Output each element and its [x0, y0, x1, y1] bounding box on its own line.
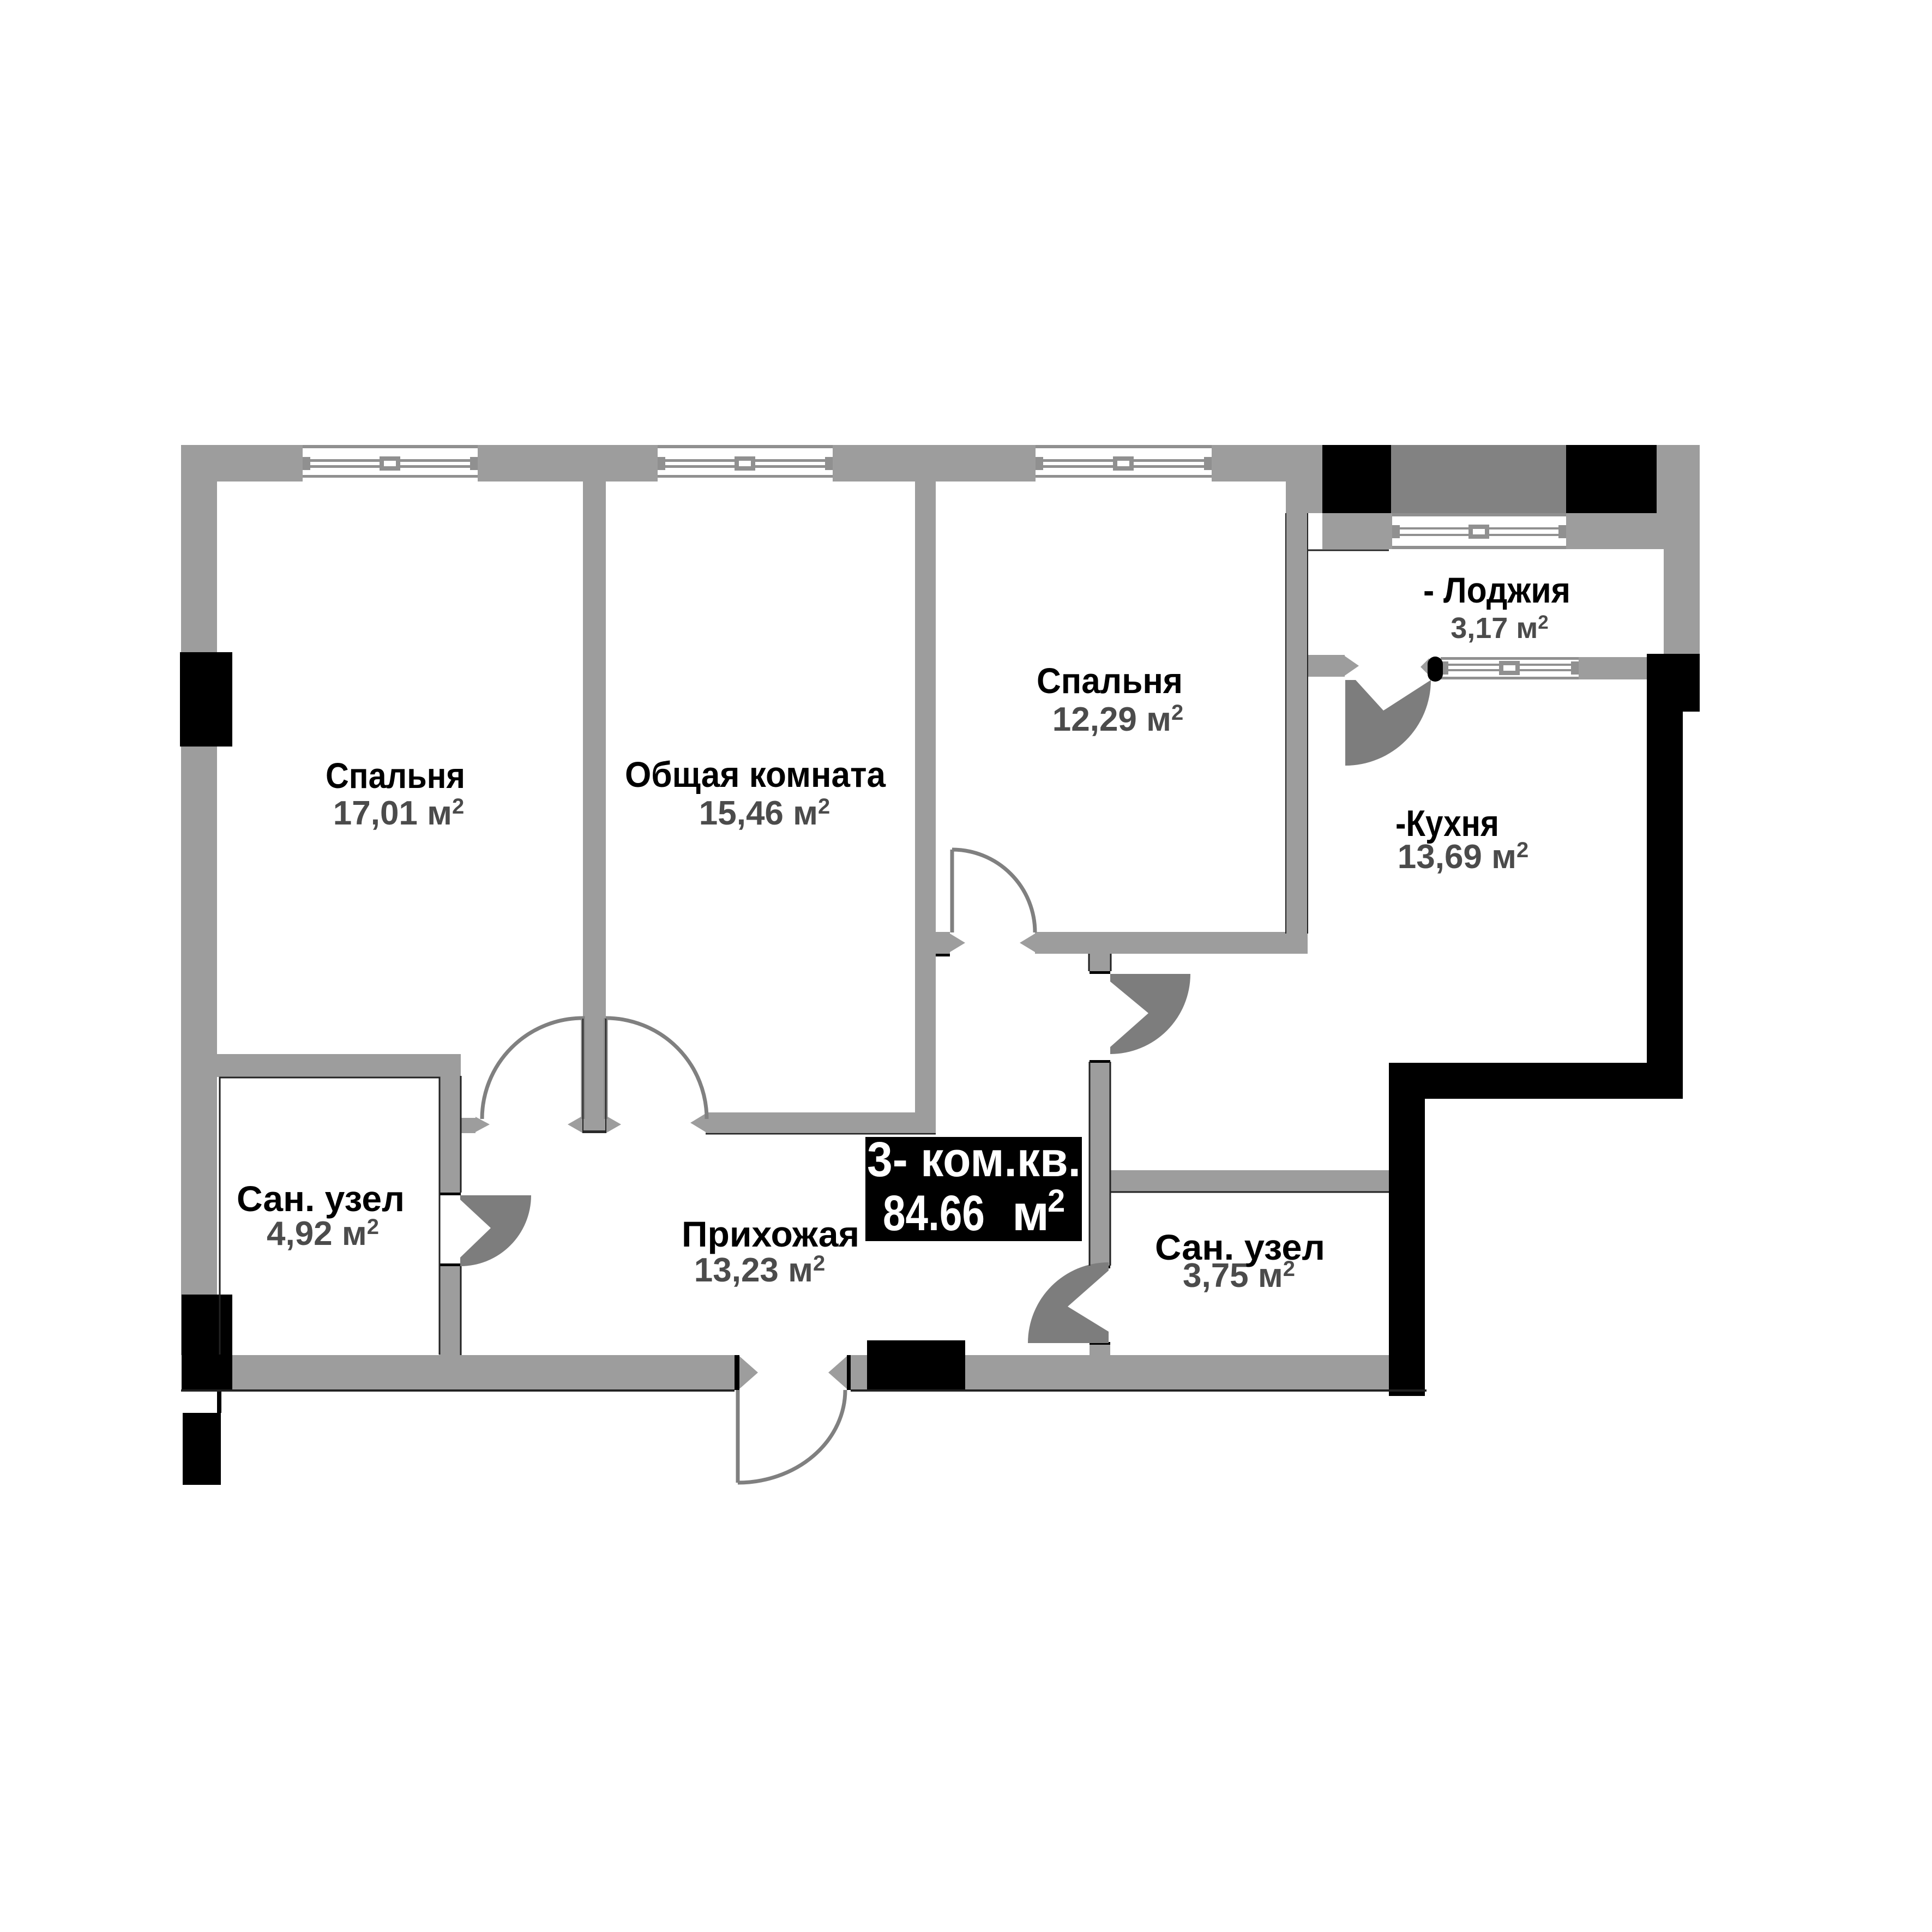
svg-text:Прихожая: Прихожая [682, 1214, 859, 1254]
svg-text:17,01 м2: 17,01 м2 [333, 795, 465, 832]
svg-text:15,46 м2: 15,46 м2 [699, 795, 830, 832]
svg-text:- Лоджия: - Лоджия [1423, 570, 1570, 610]
svg-text:3,75 м2: 3,75 м2 [1183, 1257, 1295, 1295]
svg-text:13,69 м2: 13,69 м2 [1398, 838, 1529, 876]
svg-text:13,23 м2: 13,23 м2 [694, 1251, 826, 1289]
svg-text:Спальня: Спальня [1037, 660, 1183, 701]
svg-text:Сан. узел: Сан. узел [237, 1178, 405, 1219]
svg-text:84.66: 84.66 [883, 1185, 985, 1241]
svg-text:3- ком.кв.: 3- ком.кв. [867, 1133, 1081, 1187]
svg-text:Общая комната: Общая комната [625, 754, 886, 795]
svg-text:12,29 м2: 12,29 м2 [1052, 701, 1184, 738]
svg-text:м: м [1012, 1185, 1049, 1241]
svg-text:2: 2 [1048, 1183, 1065, 1219]
svg-text:3,17 м2: 3,17 м2 [1450, 612, 1549, 645]
svg-text:4,92 м2: 4,92 м2 [267, 1215, 379, 1253]
svg-text:Спальня: Спальня [326, 755, 465, 796]
